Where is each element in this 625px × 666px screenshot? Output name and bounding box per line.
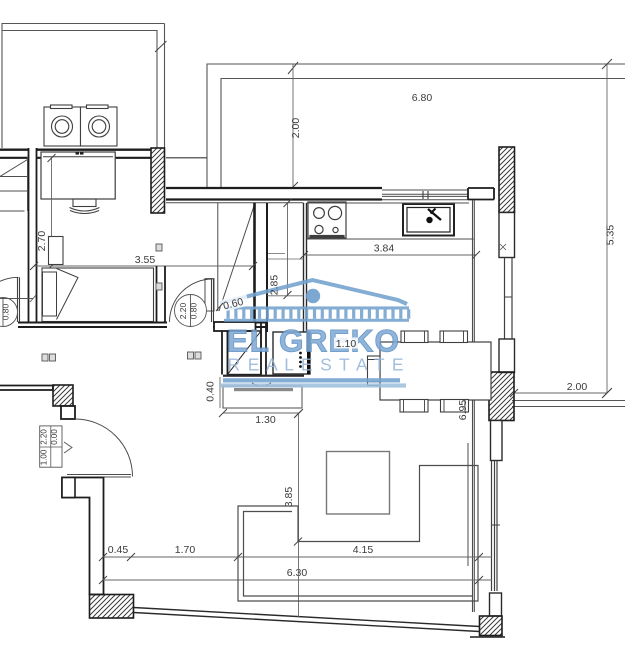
svg-text:5.35: 5.35 — [605, 225, 617, 246]
svg-text:2.00: 2.00 — [567, 381, 588, 393]
svg-text:1.10: 1.10 — [336, 338, 357, 350]
svg-text:0.40: 0.40 — [205, 381, 217, 402]
svg-text:2.70: 2.70 — [36, 231, 48, 252]
svg-text:2.20: 2.20 — [40, 429, 49, 445]
svg-text:2.00: 2.00 — [290, 118, 302, 139]
svg-text:2.20: 2.20 — [178, 302, 188, 319]
svg-text:4.15: 4.15 — [353, 544, 374, 556]
svg-text:6.30: 6.30 — [287, 567, 308, 579]
svg-text:1.70: 1.70 — [175, 544, 196, 556]
svg-text:3.85: 3.85 — [283, 487, 295, 508]
svg-text:2.85: 2.85 — [269, 275, 281, 296]
svg-text:0.45: 0.45 — [108, 544, 129, 556]
svg-text:3.55: 3.55 — [135, 254, 156, 266]
svg-text:1.30: 1.30 — [255, 414, 276, 426]
svg-text:0.80: 0.80 — [189, 302, 199, 319]
svg-text:0.00: 0.00 — [50, 429, 59, 445]
svg-text:0.80: 0.80 — [1, 303, 11, 320]
svg-text:1.00: 1.00 — [40, 449, 49, 465]
svg-text:EL: EL — [227, 323, 269, 359]
svg-text:6.95: 6.95 — [457, 400, 469, 421]
svg-text:6.80: 6.80 — [412, 92, 433, 104]
svg-text:R E A L E S T A T E: R E A L E S T A T E — [228, 355, 404, 375]
svg-text:3.84: 3.84 — [374, 243, 395, 255]
